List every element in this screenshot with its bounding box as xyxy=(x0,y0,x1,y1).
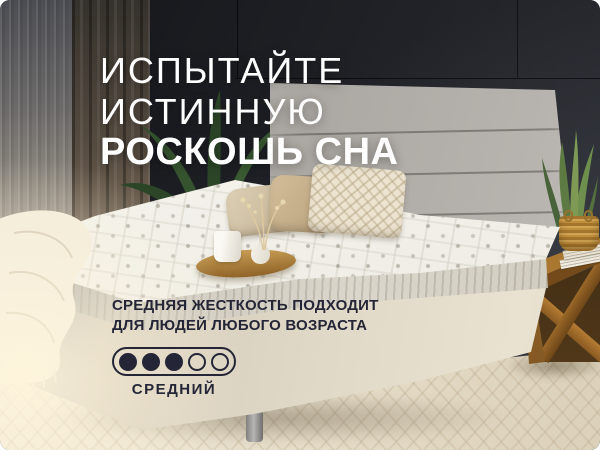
firmness-text-line-1: СРЕДНЯЯ ЖЕСТКОСТЬ ПОДХОДИТ xyxy=(112,296,379,316)
wicker-basket xyxy=(559,216,599,251)
basket-handle xyxy=(584,210,593,222)
firmness-dot-empty xyxy=(211,353,229,371)
pillow-chevron xyxy=(307,163,407,239)
firmness-text-line-2: ДЛЯ ЛЮДЕЙ ЛЮБОГО ВОЗРАСТА xyxy=(112,316,379,336)
headline-line-1: ИСПЫТАЙТЕ xyxy=(100,50,398,91)
firmness-scale-label: СРЕДНИЙ xyxy=(112,381,236,398)
firmness-dot-filled xyxy=(142,353,160,371)
wall-seam xyxy=(517,0,518,78)
mattress-ad-banner: ИСПЫТАЙТЕ ИСТИННУЮ РОСКОШЬ СНА СРЕДНЯЯ Ж… xyxy=(0,0,600,450)
firmness-info: СРЕДНЯЯ ЖЕСТКОСТЬ ПОДХОДИТ ДЛЯ ЛЮДЕЙ ЛЮБ… xyxy=(112,296,379,398)
headline-line-2: ИСТИННУЮ xyxy=(100,91,398,132)
headline-line-3: РОСКОШЬ СНА xyxy=(100,132,398,173)
firmness-scale xyxy=(112,347,236,376)
bed-leg xyxy=(246,412,263,442)
firmness-dot-filled xyxy=(119,353,137,371)
firmness-dot-filled xyxy=(165,353,183,371)
dried-flowers xyxy=(225,192,295,250)
firmness-dot-empty xyxy=(188,353,206,371)
basket-handle xyxy=(564,210,573,222)
headline: ИСПЫТАЙТЕ ИСТИННУЮ РОСКОШЬ СНА xyxy=(100,50,398,173)
